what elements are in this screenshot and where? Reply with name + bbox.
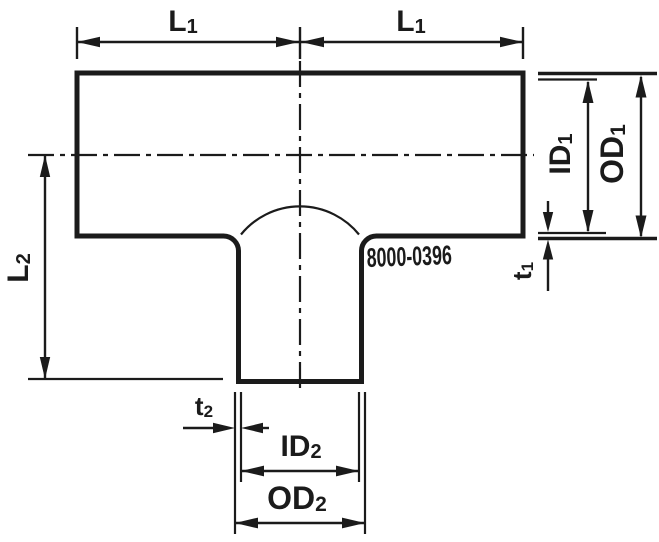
dimension-od1: OD1 — [594, 75, 647, 238]
t2-label: t2 — [195, 391, 213, 421]
t2-arrowhead-left — [241, 423, 263, 433]
od2-arrowhead-left — [235, 518, 258, 529]
t1-arrowhead-down — [543, 212, 553, 232]
od1-arrowhead-up — [636, 75, 647, 98]
t2-arrowhead-right — [213, 423, 235, 433]
t1-arrowhead-up — [543, 240, 553, 260]
dimension-t1: t1 — [507, 201, 553, 291]
od1-arrowhead-down — [636, 216, 647, 239]
dimension-l2: L2 — [2, 155, 223, 379]
l2-label: L2 — [2, 253, 35, 282]
id1-arrowhead-up — [583, 81, 594, 104]
id2-arrowhead-right — [336, 466, 359, 477]
drawing-canvas: L1 L1 ID1 OD1 t1 — [0, 0, 659, 542]
l1-left-label: L1 — [168, 5, 197, 38]
dimension-t2: t2 — [183, 391, 269, 433]
t1-label: t1 — [507, 262, 537, 280]
part-number: 8000-0396 — [366, 239, 452, 273]
id1-arrowhead-down — [583, 210, 594, 233]
dimension-id1: ID1 — [544, 81, 594, 233]
l1-left-arrowhead-right — [276, 37, 299, 47]
l1-right-label: L1 — [396, 5, 425, 38]
id2-label: ID2 — [280, 430, 321, 463]
id1-label: ID1 — [544, 133, 577, 174]
l2-arrowhead-down — [40, 357, 50, 379]
run-bottom-left-and-branch-left-wall — [75, 236, 239, 380]
dimension-l1-left: L1 — [77, 5, 299, 59]
dimension-id2: ID2 — [241, 430, 359, 476]
l1-left-arrowhead-left — [77, 37, 100, 47]
od2-label: OD2 — [267, 480, 327, 516]
l1-right-arrowhead-left — [301, 37, 324, 47]
dimension-od2: OD2 — [235, 480, 365, 528]
id2-arrowhead-left — [241, 466, 264, 477]
od1-label: OD1 — [594, 124, 630, 184]
tee-fitting-technical-drawing: L1 L1 ID1 OD1 t1 — [0, 0, 659, 542]
dimension-l1-right: L1 — [301, 5, 523, 59]
l2-arrowhead-up — [40, 155, 50, 177]
l1-right-arrowhead-right — [500, 37, 523, 47]
od2-arrowhead-right — [342, 518, 365, 529]
